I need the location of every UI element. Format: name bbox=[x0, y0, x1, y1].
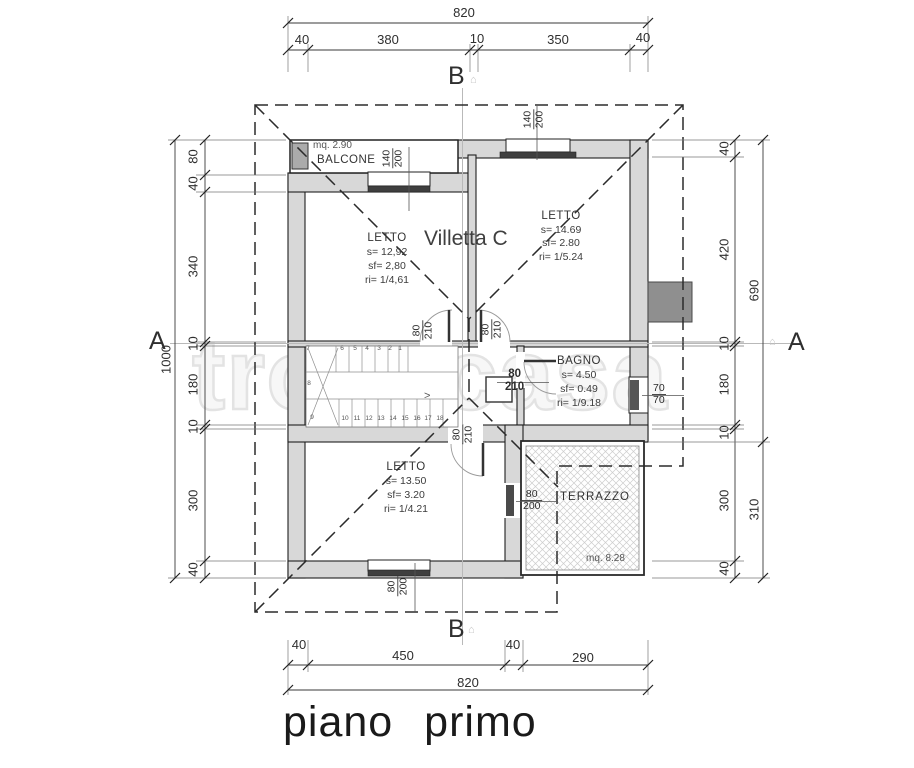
dim-right-40a: 40 bbox=[717, 129, 732, 169]
door-s-size: 80 210 bbox=[451, 425, 474, 445]
dim-top-seg-10: 10 bbox=[464, 31, 490, 46]
house-icon: ⌂ bbox=[468, 624, 475, 636]
dim-right-10b: 10 bbox=[717, 413, 732, 453]
dim-top-seg-380: 380 bbox=[370, 32, 406, 47]
balcony-window-size: 140 200 bbox=[381, 149, 404, 169]
room-ratio: ri= 1/4,61 bbox=[345, 273, 429, 287]
house-icon: ⌂ bbox=[470, 74, 477, 86]
door-bagno-size: 80 210 bbox=[505, 368, 524, 394]
ne-window-size: 140 200 bbox=[522, 110, 545, 130]
stair-step: 17 bbox=[423, 415, 433, 422]
dimension-ticks bbox=[170, 18, 768, 695]
stair-step: 8 bbox=[304, 380, 314, 387]
extension-lines bbox=[168, 16, 770, 695]
dim-top-seg-40a: 40 bbox=[290, 32, 314, 47]
stair-step: 6 bbox=[337, 345, 347, 352]
room-ratio: ri= 1/9.18 bbox=[535, 396, 623, 410]
opening-width: 70 bbox=[653, 383, 665, 394]
dim-left-340: 340 bbox=[186, 247, 201, 287]
dim-left-40a: 40 bbox=[186, 164, 201, 204]
door-nw-size: 80 210 bbox=[411, 321, 434, 341]
room-surface: s= 14.69 bbox=[519, 224, 603, 238]
dim-left-300: 300 bbox=[186, 481, 201, 521]
dim-right-180: 180 bbox=[717, 365, 732, 405]
section-marker-b-bottom: B bbox=[448, 615, 465, 644]
dim-right-300: 300 bbox=[717, 481, 732, 521]
section-marker-a-left: A bbox=[149, 327, 166, 356]
opening-width: 80 bbox=[480, 324, 491, 336]
door-ne-size: 80 210 bbox=[480, 320, 503, 340]
opening-height: 200 bbox=[522, 500, 542, 512]
room-window-surface: sf= 0.49 bbox=[535, 382, 623, 396]
dim-right-40b: 40 bbox=[717, 549, 732, 589]
section-marker-a-right: A bbox=[788, 328, 805, 357]
stair-step: 14 bbox=[388, 415, 398, 422]
room-ratio: ri= 1/5.24 bbox=[519, 251, 603, 265]
opening-width: 80 bbox=[508, 368, 521, 381]
opening-height: 200 bbox=[397, 577, 409, 597]
floor-label: piano primo bbox=[283, 698, 537, 747]
room-letto-s: LETTO s= 13.50 sf= 3.20 ri= 1/4.21 bbox=[364, 460, 448, 516]
dimension-lines bbox=[175, 23, 763, 690]
stair-step: 4 bbox=[362, 345, 372, 352]
s-window-size: 80 200 bbox=[386, 577, 409, 597]
floorplan-linework bbox=[0, 0, 914, 768]
stair-step: 10 bbox=[340, 415, 350, 422]
terrace-area: mq. 8.28 bbox=[586, 553, 625, 564]
opening-width: 80 bbox=[526, 489, 538, 500]
room-letto-nw: LETTO s= 12,92 sf= 2,80 ri= 1/4,61 bbox=[345, 231, 429, 287]
stair-step: 18 bbox=[435, 415, 445, 422]
room-name: LETTO bbox=[345, 231, 429, 245]
dim-bottom-40b: 40 bbox=[501, 637, 525, 652]
dim-right-outer-310: 310 bbox=[747, 490, 762, 530]
opening-height: 210 bbox=[505, 381, 524, 394]
room-bagno: BAGNO s= 4.50 sf= 0.49 ri= 1/9.18 bbox=[535, 354, 623, 410]
room-name: LETTO bbox=[364, 460, 448, 474]
balcony-area: mq. 2.90 bbox=[313, 140, 352, 151]
room-window-surface: sf= 3.20 bbox=[364, 488, 448, 502]
stair-direction-arrow: > bbox=[424, 390, 430, 402]
chimney-block bbox=[648, 282, 692, 322]
stair-step: 13 bbox=[376, 415, 386, 422]
balcony-name: BALCONE bbox=[317, 154, 375, 166]
opening-height: 70 bbox=[652, 394, 666, 406]
room-name: BAGNO bbox=[535, 354, 623, 368]
dim-bottom-290: 290 bbox=[565, 650, 601, 665]
room-surface: s= 13.50 bbox=[364, 474, 448, 488]
stair-step: 12 bbox=[364, 415, 374, 422]
opening-height: 210 bbox=[462, 425, 474, 445]
dim-left-10a: 10 bbox=[186, 324, 201, 364]
room-letto-ne: LETTO s= 14.69 sf= 2.80 ri= 1/5.24 bbox=[519, 210, 603, 264]
dim-top-seg-40b: 40 bbox=[630, 30, 656, 45]
stair-step: 1 bbox=[395, 345, 405, 352]
stair-step: 2 bbox=[385, 345, 395, 352]
plan-title: Villetta C bbox=[424, 227, 508, 251]
dim-left-10b: 10 bbox=[186, 407, 201, 447]
dim-left-40b: 40 bbox=[186, 550, 201, 590]
room-name: LETTO bbox=[519, 210, 603, 224]
section-marker-b-top: B bbox=[448, 62, 465, 91]
opening-height: 200 bbox=[533, 110, 545, 130]
dim-top-total: 820 bbox=[446, 5, 482, 20]
room-ratio: ri= 1/4.21 bbox=[364, 502, 448, 516]
dim-right-outer-690: 690 bbox=[747, 271, 762, 311]
stair-step: 15 bbox=[400, 415, 410, 422]
room-surface: s= 12,92 bbox=[345, 245, 429, 259]
room-window-surface: sf= 2,80 bbox=[345, 259, 429, 273]
stair-step: 9 bbox=[307, 414, 317, 421]
stair-step: 7 bbox=[303, 345, 313, 352]
bagno-window-size: 70 70 bbox=[652, 383, 666, 406]
opening-width: 140 bbox=[522, 111, 533, 129]
opening-width: 80 bbox=[386, 581, 397, 593]
opening-width: 140 bbox=[381, 150, 392, 168]
room-surface: s= 4.50 bbox=[535, 368, 623, 382]
opening-width: 80 bbox=[411, 325, 422, 337]
dim-left-180: 180 bbox=[186, 365, 201, 405]
terrace-name: TERRAZZO bbox=[560, 491, 630, 503]
door-terrace-size: 80 200 bbox=[522, 489, 542, 512]
opening-width: 80 bbox=[451, 429, 462, 441]
room-window-surface: sf= 2.80 bbox=[519, 237, 603, 251]
dim-bottom-total: 820 bbox=[450, 675, 486, 690]
house-icon: ⌂ bbox=[769, 336, 776, 348]
stair-step: 3 bbox=[374, 345, 384, 352]
opening-height: 210 bbox=[422, 321, 434, 341]
dim-top-seg-350: 350 bbox=[540, 32, 576, 47]
opening-height: 210 bbox=[491, 320, 503, 340]
stair-step: 5 bbox=[350, 345, 360, 352]
dim-right-10a: 10 bbox=[717, 324, 732, 364]
dim-bottom-450: 450 bbox=[385, 648, 421, 663]
stair-step: 16 bbox=[412, 415, 422, 422]
dim-bottom-40a: 40 bbox=[287, 637, 311, 652]
stair-step: 11 bbox=[352, 415, 362, 422]
terrace-door-leaf bbox=[506, 485, 514, 516]
floor-plan-page: trovacasa bbox=[0, 0, 914, 768]
opening-height: 200 bbox=[392, 149, 404, 169]
dim-right-420: 420 bbox=[717, 230, 732, 270]
